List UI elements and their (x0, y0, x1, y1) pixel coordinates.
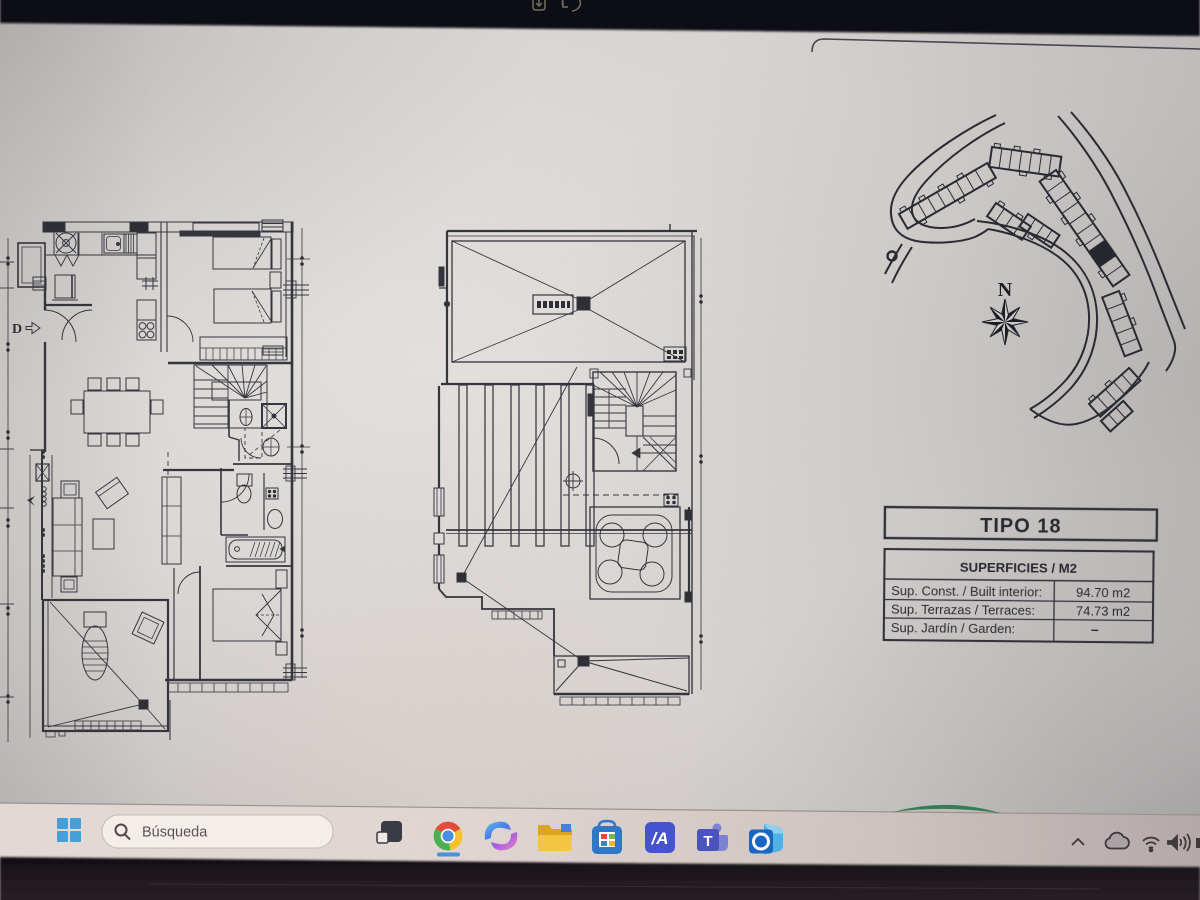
svg-text:94.70 m2: 94.70 m2 (1076, 585, 1130, 601)
svg-text:TIPO 18: TIPO 18 (980, 515, 1062, 538)
svg-text:Sup. Jardín / Garden:: Sup. Jardín / Garden: (891, 620, 1015, 636)
svg-text:D: D (12, 322, 22, 337)
svg-text:Sup. Terrazas / Terraces:: Sup. Terrazas / Terraces: (891, 602, 1035, 618)
svg-text:SUPERFICIES / M2: SUPERFICIES / M2 (960, 560, 1077, 576)
svg-text:Búsqueda: Búsqueda (142, 825, 208, 841)
svg-text:T: T (703, 833, 712, 850)
svg-text:Sup. Const. / Built interior:: Sup. Const. / Built interior: (891, 583, 1042, 599)
svg-text:N: N (998, 279, 1013, 301)
svg-text:74.73 m2: 74.73 m2 (1076, 603, 1130, 619)
svg-text:–: – (1091, 621, 1099, 637)
svg-text:/A: /A (651, 829, 669, 848)
